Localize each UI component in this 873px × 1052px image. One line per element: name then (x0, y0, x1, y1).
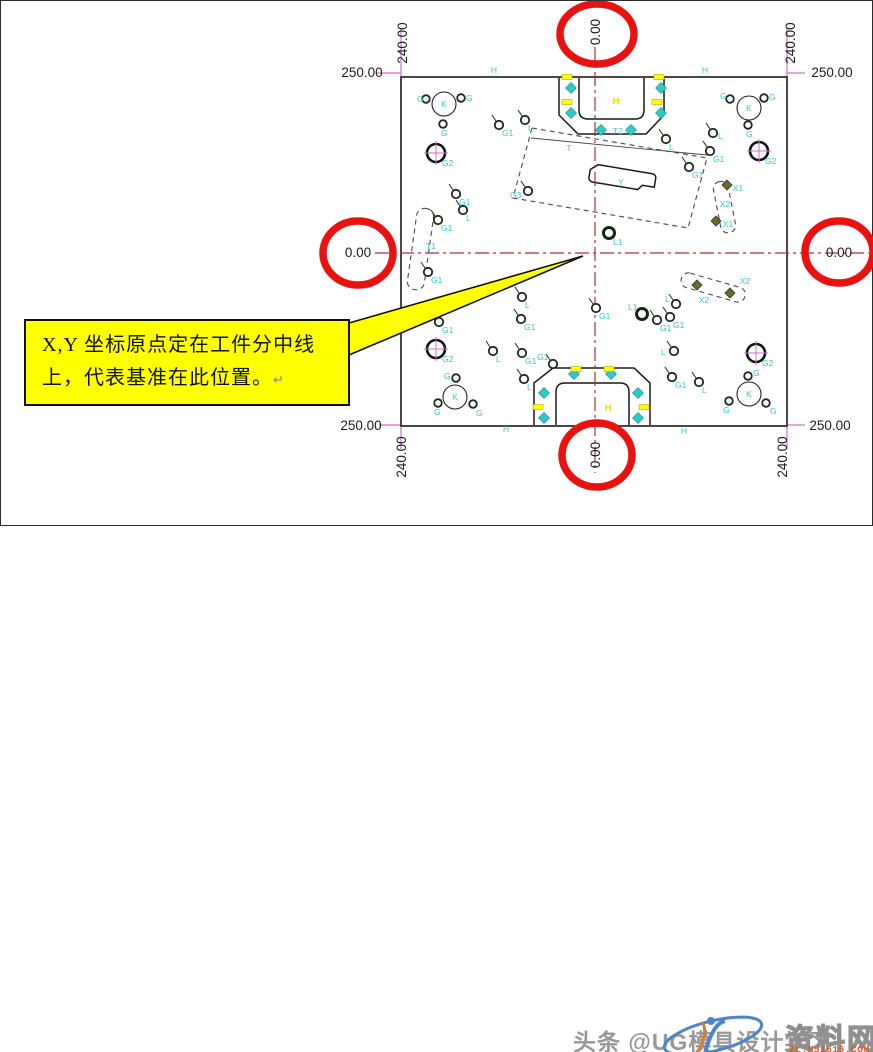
marker-label: G1 (599, 311, 611, 321)
marker-label: L1 (628, 302, 638, 312)
dimension-label: 240.00 (394, 436, 409, 477)
yellow-highlight-mark (654, 75, 664, 80)
cad-label: X2 (699, 295, 710, 305)
marker-label: L (466, 213, 471, 223)
dimension-label: 240.00 (775, 436, 790, 477)
satellite-hole (457, 94, 465, 102)
satellite-hole (469, 400, 477, 408)
cad-label: Y (618, 177, 624, 187)
marker-label: G2 (442, 158, 454, 168)
marker-label: L (527, 382, 532, 392)
dimension-label: 240.00 (783, 22, 798, 63)
marker-label: K (746, 103, 752, 113)
yellow-highlight-mark (604, 367, 614, 372)
cad-label-yellow: H (613, 96, 620, 107)
cad-drawing: KGGGKGGGKGGGKGGGG2G2G2G2G1LG1G1G1G1LG3G1… (1, 1, 873, 527)
marker-label: L (525, 300, 530, 310)
callout-line1: X,Y 坐标原点定在工件分中线 (42, 334, 315, 356)
marker-label: G1 (524, 322, 536, 332)
marker-label: G1 (537, 352, 549, 362)
marker-label: L (718, 131, 723, 141)
marker-label: G2 (765, 156, 777, 166)
hole-marker (524, 187, 532, 195)
marker-label: G (466, 93, 473, 103)
satellite-hole (452, 374, 460, 382)
dimension-label: 250.00 (811, 65, 852, 80)
dimension-label: 250.00 (341, 65, 382, 80)
marker-label: G1 (673, 320, 685, 330)
yellow-highlight-mark (571, 367, 581, 372)
marker-label: G1 (660, 323, 672, 333)
yellow-highlight-mark (652, 100, 662, 105)
marker-label: G (746, 129, 753, 139)
screenshot-root: { "colors":{ "cyan":"#2fc9c9", "yellow":… (0, 0, 873, 526)
cad-label: H (491, 65, 497, 75)
marker-label: L (669, 142, 674, 152)
marker-label: L (528, 123, 533, 133)
marker-label: G2 (442, 354, 454, 364)
cad-label-yellow: H (605, 403, 612, 414)
dimension-label: 0.00 (826, 245, 852, 260)
marker-label: G (720, 91, 727, 101)
return-mark: ↵ (273, 372, 284, 387)
satellite-hole (434, 399, 442, 407)
satellite-hole (762, 399, 770, 407)
yellow-highlight-mark (639, 405, 649, 410)
satellite-hole (439, 120, 447, 128)
mold-plate-outline (401, 77, 787, 426)
marker-label: L (661, 347, 666, 357)
yellow-highlight-mark (562, 75, 572, 80)
marker-label: G (769, 92, 776, 102)
marker-label: G3 (510, 190, 522, 200)
dimension-label: 0.00 (588, 442, 603, 468)
hole-marker (709, 129, 717, 137)
satellite-hole (726, 95, 734, 103)
hole-marker-bold (637, 309, 648, 320)
callout-line2: 上，代表基准在此位置。 (42, 367, 273, 389)
marker-label: G (723, 405, 730, 415)
marker-label: G1 (692, 170, 704, 180)
cad-label: X1 (733, 183, 744, 193)
dimension-label: 240.00 (395, 22, 410, 63)
cad-label: T1 (426, 241, 436, 251)
dimension-label: 250.00 (340, 418, 381, 433)
cad-label: H (503, 424, 509, 434)
marker-label: G1 (675, 380, 687, 390)
cad-label: H (702, 65, 708, 75)
hole-marker (670, 347, 678, 355)
marker-label: G (770, 406, 777, 416)
marker-label: K (746, 389, 752, 399)
marker-label: G1 (502, 128, 514, 138)
marker-label: L1 (613, 237, 623, 247)
marker-label: G1 (431, 275, 443, 285)
marker-label: G (476, 408, 483, 418)
marker-label: G1 (442, 325, 454, 335)
marker-label: G (417, 94, 424, 104)
dimension-label: 0.00 (345, 245, 371, 260)
cad-label: T (566, 143, 571, 153)
yellow-highlight-mark (533, 405, 543, 410)
marker-label: G1 (441, 223, 453, 233)
hole-marker (549, 360, 557, 368)
cad-label: T2 (613, 126, 623, 136)
marker-label: G1 (713, 154, 725, 164)
satellite-hole (744, 372, 752, 380)
cad-label: X2 (740, 276, 751, 286)
marker-label: G (441, 128, 448, 138)
hole-marker (672, 300, 680, 308)
marker-label: K (452, 392, 458, 402)
marker-label: G2 (762, 358, 774, 368)
marker-label: G (753, 368, 760, 378)
watermark-url: ZL.XS1616.COM (789, 1044, 870, 1052)
satellite-hole (760, 94, 768, 102)
annotation-callout: X,Y 坐标原点定在工件分中线 上，代表基准在此位置。↵ (24, 319, 350, 406)
satellite-hole (725, 397, 733, 405)
marker-label: L (702, 385, 707, 395)
marker-label: G (434, 407, 441, 417)
cad-label: X1 (723, 219, 734, 229)
cad-label: H (681, 426, 687, 436)
marker-label: K (441, 99, 447, 109)
dimension-label: 0.00 (588, 19, 603, 45)
watermark-logo-icon (653, 1013, 773, 1052)
cad-label: X2 (720, 199, 731, 209)
marker-label: G1 (525, 356, 537, 366)
dimension-label: 250.00 (809, 418, 850, 433)
yellow-highlight-mark (562, 100, 572, 105)
marker-label: G (444, 371, 451, 381)
marker-label: L (665, 294, 670, 304)
marker-label: L (496, 354, 501, 364)
satellite-hole (744, 121, 752, 129)
